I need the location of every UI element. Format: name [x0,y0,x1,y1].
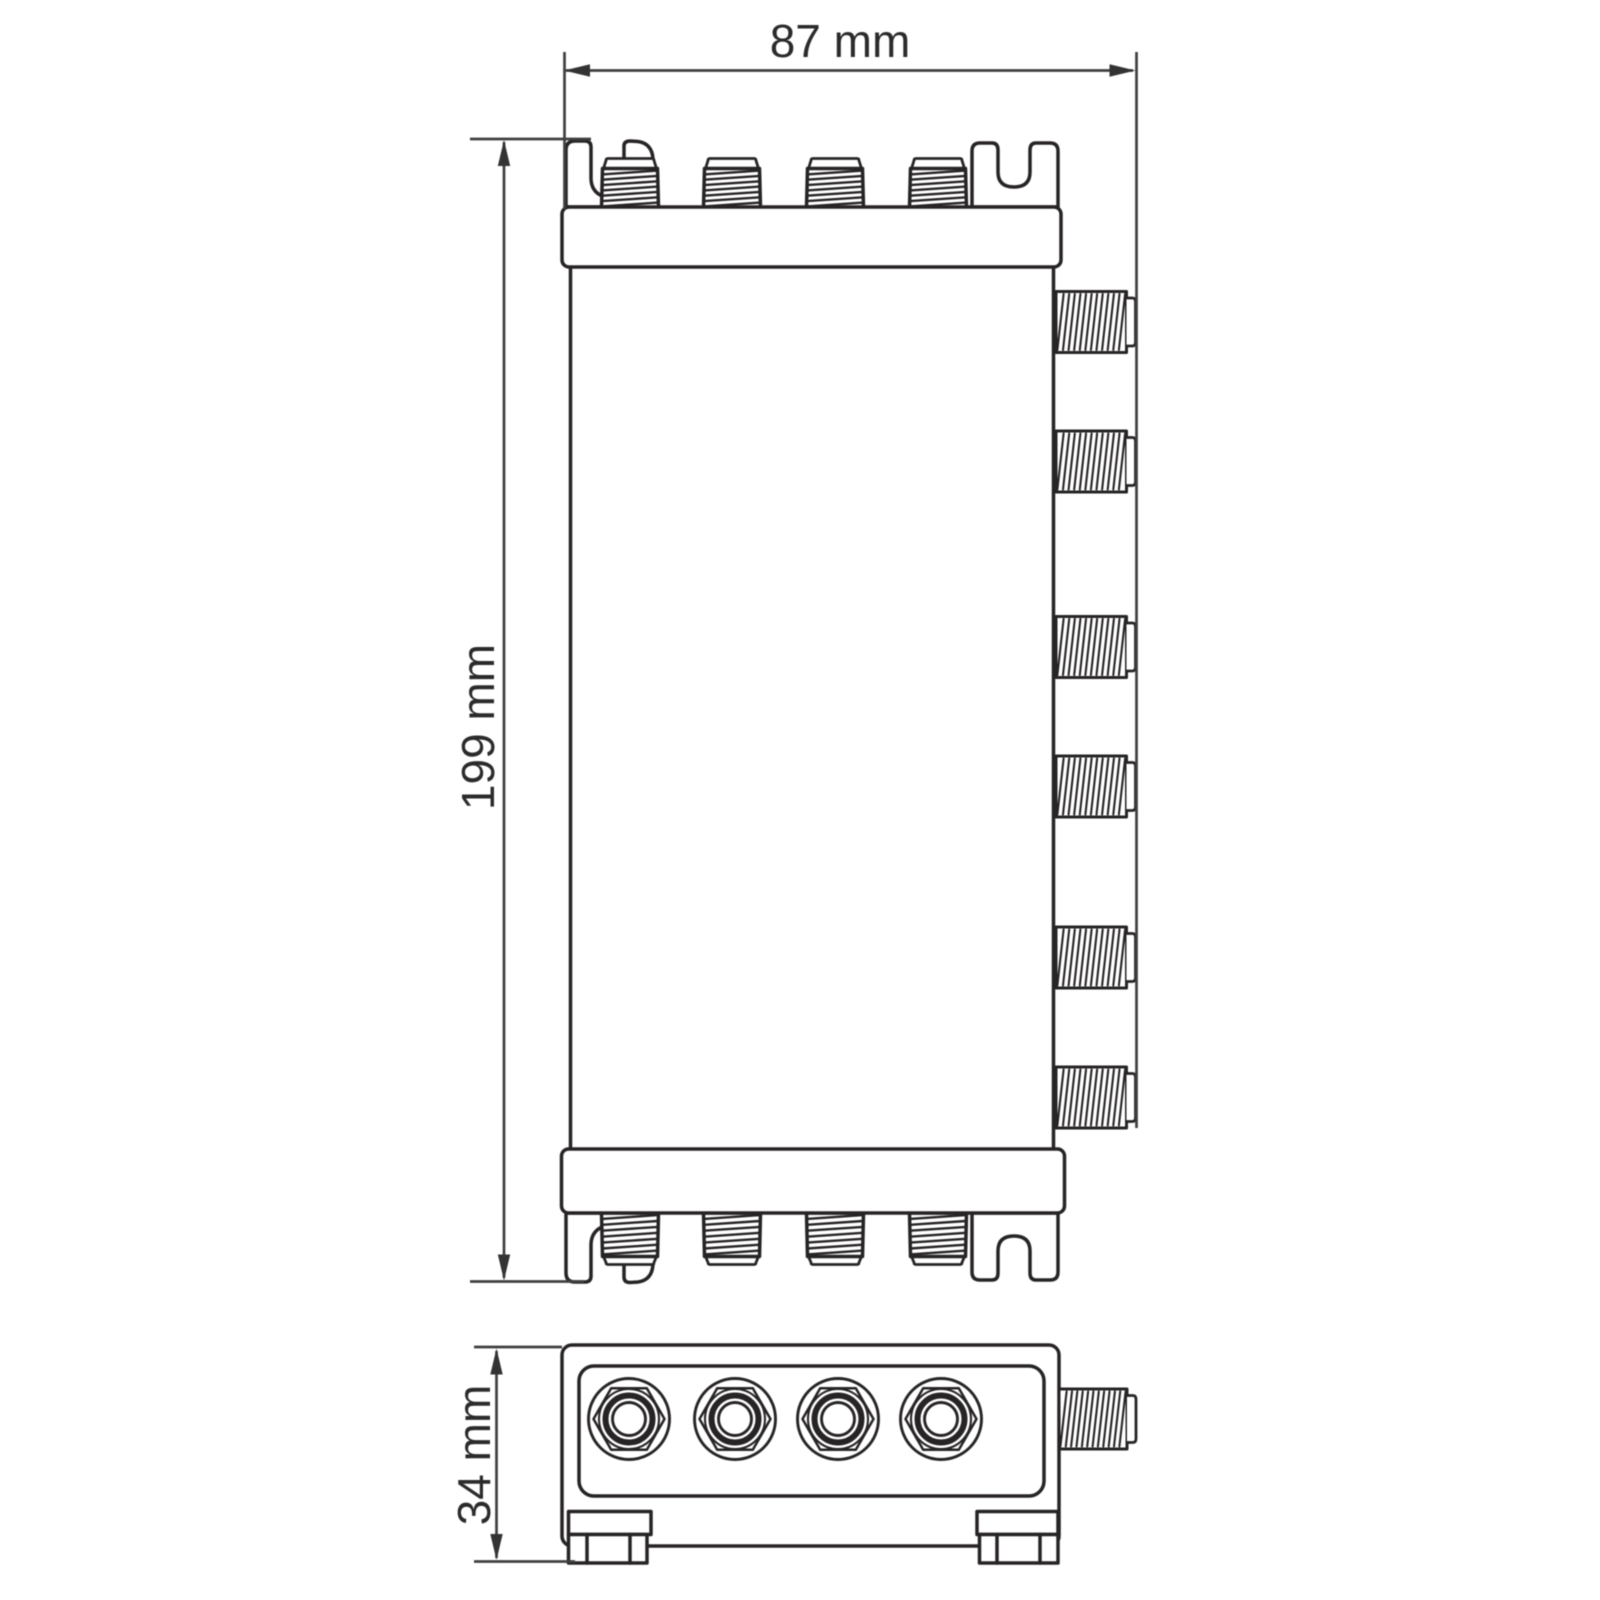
svg-text:87 mm: 87 mm [770,15,911,67]
svg-text:199 mm: 199 mm [452,644,504,810]
svg-text:34 mm: 34 mm [448,1385,500,1526]
